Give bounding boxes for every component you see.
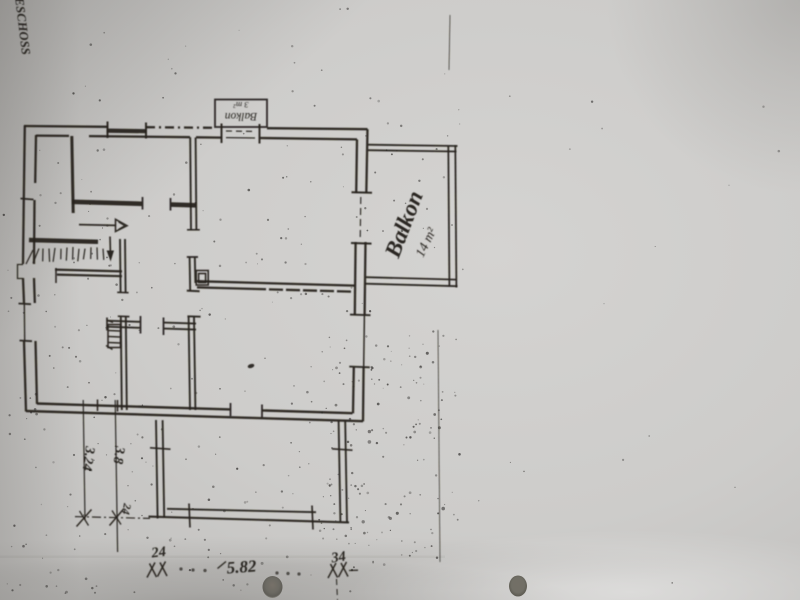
svg-text:34: 34	[329, 549, 347, 567]
svg-text:24: 24	[150, 544, 167, 562]
svg-text:5.82: 5.82	[226, 556, 258, 577]
svg-text:3 m²: 3 m²	[233, 100, 250, 110]
svg-text:GESCHOSS: GESCHOSS	[11, 0, 33, 56]
svg-text:3.8: 3.8	[110, 444, 127, 464]
svg-text:14 m²: 14 m²	[412, 224, 439, 259]
svg-text:24: 24	[119, 501, 133, 515]
svg-text:3.24: 3.24	[79, 444, 97, 471]
svg-text:Balkon: Balkon	[224, 110, 257, 122]
